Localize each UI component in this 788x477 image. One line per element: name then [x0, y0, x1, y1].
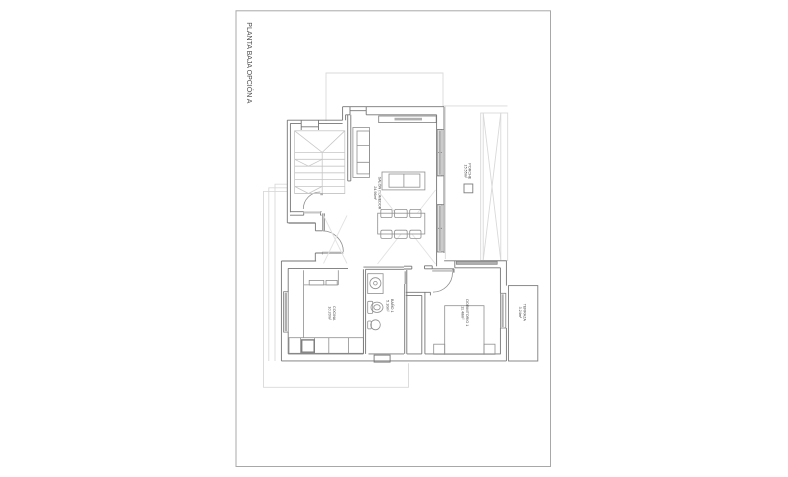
svg-text:24.96m²: 24.96m²: [373, 186, 377, 200]
svg-text:3.24m²: 3.24m²: [518, 307, 522, 319]
svg-text:5.10m²: 5.10m²: [386, 300, 390, 312]
svg-text:11.48m²: 11.48m²: [461, 306, 465, 320]
svg-text:10.20m²: 10.20m²: [328, 306, 332, 320]
svg-text:15.55m²: 15.55m²: [463, 165, 467, 179]
svg-text:PLANTA BAJA OPCIÓN A: PLANTA BAJA OPCIÓN A: [245, 22, 254, 104]
